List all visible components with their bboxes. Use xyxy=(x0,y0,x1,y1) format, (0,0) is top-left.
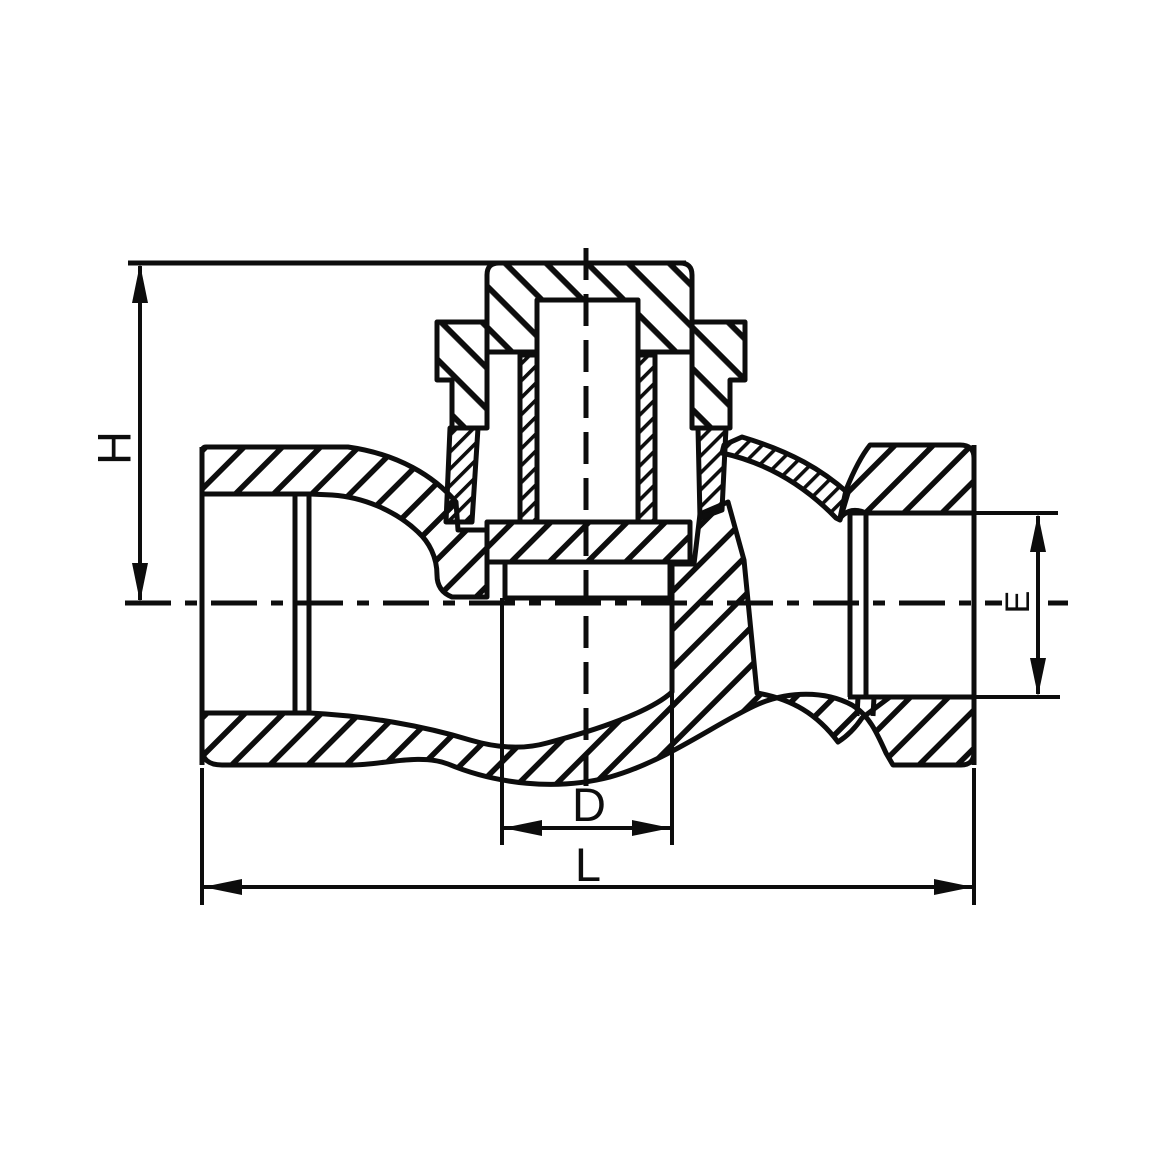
right-counterbore-line-1 xyxy=(857,697,858,716)
thread-serration-left xyxy=(520,355,537,522)
body-right-top-wall xyxy=(840,445,974,518)
drawing-canvas: H E D L xyxy=(0,0,1152,1152)
bonnet-neck-left xyxy=(446,428,478,522)
bonnet-neck-right xyxy=(698,428,726,518)
e-dimension-label: E xyxy=(999,591,1037,614)
h-dimension-label: H xyxy=(88,431,141,465)
right-counterbore-line-2 xyxy=(873,697,874,716)
check-valve-section-drawing: H E D L xyxy=(0,0,1152,1152)
l-dimension-label: L xyxy=(575,838,601,891)
d-dimension-label: D xyxy=(572,778,606,831)
thread-serration-right xyxy=(638,355,655,522)
